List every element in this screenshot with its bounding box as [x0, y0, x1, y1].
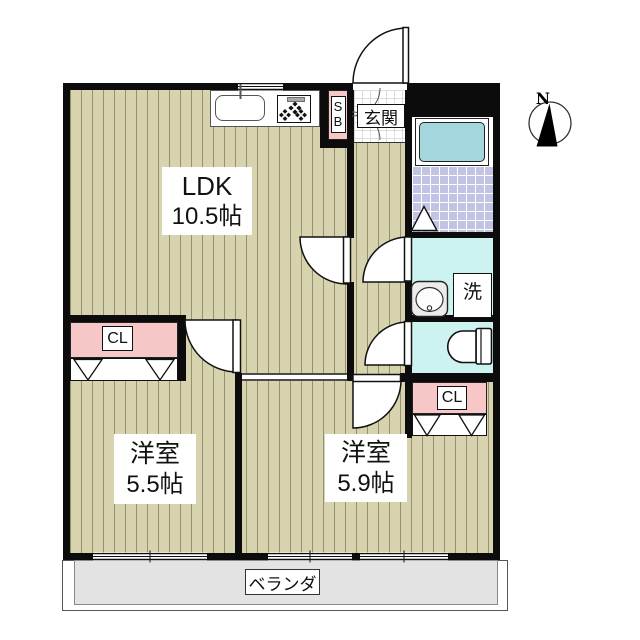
wall-bottom-d	[448, 553, 500, 560]
compass-icon: N	[529, 89, 571, 147]
wall-shoebox-left	[320, 90, 328, 148]
laundry-text: 洗	[463, 277, 482, 304]
wall-rightcol-a	[405, 117, 412, 238]
bedroom-left-size: 5.5帖	[126, 470, 183, 499]
laundry-label-box: 洗	[453, 273, 492, 318]
shoe-box-line1: S	[334, 100, 343, 115]
wall-bedroom-partition	[235, 373, 242, 556]
wall-bath-washroom	[405, 232, 493, 238]
shoe-box-label: S B	[331, 96, 346, 133]
bedroom-right-label: 洋室 5.9帖	[325, 434, 407, 502]
wall-hall-lower	[347, 282, 354, 381]
floorplan-page: { "plan": { "type": "apartment-floorplan…	[0, 0, 640, 640]
toilet-room-area	[412, 322, 493, 373]
wall-top-right	[407, 83, 500, 90]
wall-closet-left-side	[178, 315, 186, 381]
wall-hall-upper	[347, 90, 354, 238]
wall-top-left	[63, 83, 238, 90]
wall-top-mid	[283, 83, 353, 90]
bedroom-right-size: 5.9帖	[337, 469, 394, 498]
bedroom-right-name: 洋室	[341, 438, 391, 469]
compass-north-label: N	[536, 89, 550, 108]
ldk-size: 10.5帖	[172, 202, 243, 231]
wall-bottom-a	[63, 553, 93, 560]
entrance-label-text: 玄関	[364, 104, 398, 129]
bedroom-left-name: 洋室	[130, 439, 180, 470]
wall-toilet-closet	[400, 373, 493, 382]
veranda-text: ベランダ	[249, 570, 317, 595]
wall-right	[493, 83, 500, 560]
entrance-label: 玄関	[357, 104, 405, 128]
kitchen-sink-icon	[215, 95, 265, 121]
closet-left-text: CL	[107, 330, 127, 348]
ldk-label: LDK 10.5帖	[162, 167, 252, 235]
shoe-box-line2: B	[334, 115, 343, 130]
closet-right-text: CL	[442, 389, 462, 407]
door-swing-icon-entrance	[353, 28, 407, 83]
closet-left-doors	[70, 358, 178, 381]
closet-right-label: CL	[437, 386, 467, 410]
bathroom-tile-floor	[412, 166, 493, 232]
closet-right-doors	[412, 414, 487, 436]
closet-left-label: CL	[102, 326, 133, 351]
stove-icon	[277, 95, 311, 123]
entrance-door-leaf	[403, 28, 409, 84]
wall-bottom-c	[352, 553, 360, 560]
ldk-name: LDK	[182, 171, 233, 203]
wall-block-top-right	[405, 90, 493, 117]
bedroom-left-label: 洋室 5.5帖	[114, 434, 196, 504]
bathtub-water	[419, 122, 485, 162]
veranda-label: ベランダ	[245, 569, 320, 595]
wall-ldk-bedroom-left	[63, 315, 185, 322]
